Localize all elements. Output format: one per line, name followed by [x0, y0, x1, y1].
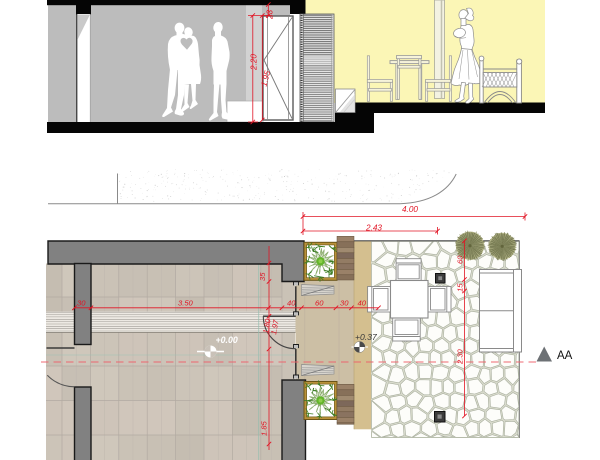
svg-text:+0.37: +0.37	[355, 332, 378, 342]
svg-text:30: 30	[77, 299, 86, 308]
svg-text:2.20: 2.20	[250, 54, 259, 71]
svg-text:35: 35	[258, 272, 267, 281]
svg-text:2.43: 2.43	[365, 224, 382, 233]
svg-text:23: 23	[265, 9, 274, 20]
svg-text:2.30: 2.30	[456, 348, 465, 365]
svg-text:+0.00: +0.00	[216, 335, 238, 345]
svg-text:3.50: 3.50	[178, 299, 194, 308]
svg-text:15: 15	[456, 283, 465, 292]
svg-text:60: 60	[456, 255, 465, 264]
svg-text:40: 40	[358, 299, 367, 308]
svg-text:40: 40	[287, 299, 296, 308]
svg-text:30: 30	[340, 299, 349, 308]
svg-text:AA: AA	[557, 350, 573, 362]
svg-text:1.85: 1.85	[260, 420, 269, 436]
svg-text:4.00: 4.00	[402, 205, 418, 214]
svg-text:60: 60	[315, 299, 324, 308]
